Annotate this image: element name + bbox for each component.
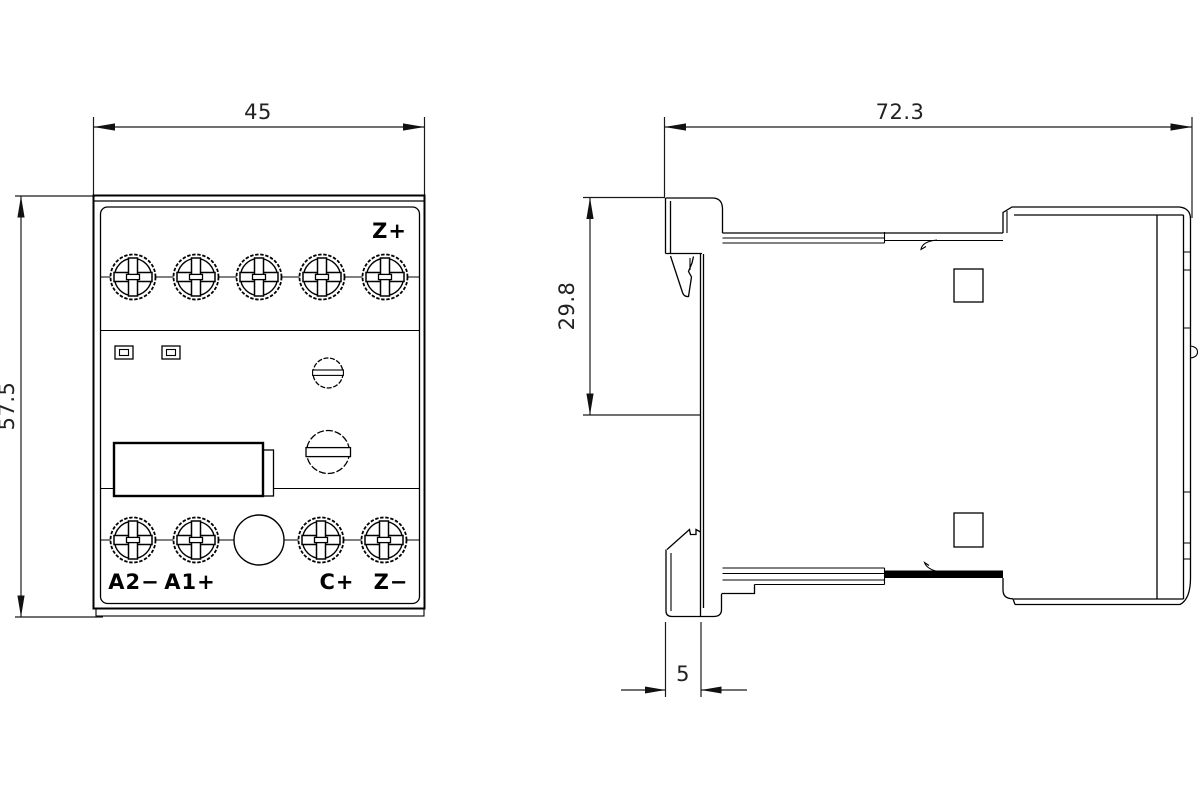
arrow-left-icon (665, 123, 687, 130)
arrow-down-icon (586, 394, 593, 416)
latch-hook (921, 240, 937, 250)
terminal-label-c: C+ (319, 570, 354, 594)
shelf-dark-band (885, 571, 1004, 579)
rail-bump (1191, 346, 1198, 358)
drawing-svg: 45 57.5 Z+ (0, 0, 1200, 800)
slotted-screw-small (313, 358, 344, 388)
indicator-window (162, 346, 180, 359)
side-rear-body (954, 207, 1198, 605)
front-terminal-row-top: Z+ (101, 219, 419, 300)
arrow-left-icon (701, 687, 722, 694)
arrow-left-icon (94, 123, 116, 130)
rail-channel-ticks (1184, 252, 1191, 559)
screw-terminal (174, 255, 219, 300)
terminal-label-z-plus: Z+ (372, 219, 407, 243)
arrow-up-icon (586, 198, 593, 220)
arrow-right-icon (645, 687, 666, 694)
screw-terminal (299, 518, 344, 563)
side-front-face-column (666, 198, 755, 617)
dimension-depth-72-3: 72.3 (665, 100, 1193, 218)
screw-terminal (237, 255, 282, 300)
technical-drawing: 45 57.5 Z+ (0, 0, 1200, 800)
screw-terminal (362, 518, 407, 563)
dim-value-45: 45 (244, 100, 272, 124)
dim-value-57-5: 57.5 (0, 382, 19, 431)
side-lower-shelf (723, 563, 1004, 585)
arrow-down-icon (17, 596, 24, 618)
screw-terminal (174, 518, 219, 563)
front-view: 45 57.5 Z+ (0, 100, 425, 617)
indicator-window (115, 346, 133, 359)
dimension-rail-5: 5 (621, 622, 747, 697)
side-view: 72.3 29.8 5 (555, 100, 1198, 697)
label-plate (114, 443, 274, 496)
dim-value-29-8: 29.8 (555, 282, 579, 331)
slotted-screw-large (306, 431, 351, 474)
terminal-label-a2: A2− (108, 570, 159, 594)
dimension-upper-29-8: 29.8 (555, 198, 701, 416)
dimension-height-57-5: 57.5 (0, 196, 103, 617)
mount-hole-upper (954, 269, 983, 302)
arrow-right-icon (403, 123, 425, 130)
blank-terminal-hole (234, 515, 284, 565)
screw-terminal (363, 255, 408, 300)
terminal-label-a1: A1+ (164, 570, 215, 594)
terminal-label-z-minus: Z− (374, 570, 409, 594)
screw-terminal (111, 255, 156, 300)
arrow-right-icon (1171, 123, 1193, 130)
side-upper-shelf (723, 232, 1004, 250)
dim-value-72-3: 72.3 (876, 100, 925, 124)
front-terminal-row-bottom: A2− A1+ C+ Z− (101, 515, 419, 594)
dimension-width-45: 45 (94, 100, 425, 195)
front-middle-features (114, 346, 351, 496)
screw-terminal (300, 255, 345, 300)
mount-hole-lower (954, 513, 983, 547)
arrow-up-icon (17, 196, 24, 218)
dim-value-5: 5 (676, 662, 690, 686)
lower-clip (667, 530, 701, 550)
screw-terminal (111, 518, 156, 563)
